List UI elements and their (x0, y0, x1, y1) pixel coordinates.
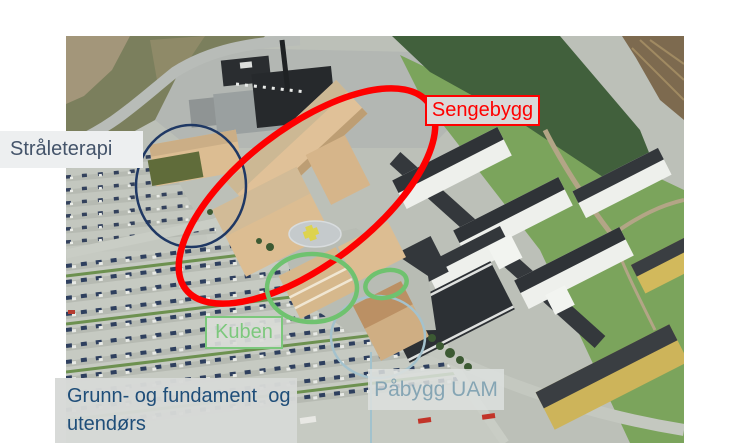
label-sengebygg-text: Sengebygg (432, 99, 533, 121)
label-grunn-line1: Grunn- og fundament og (67, 382, 297, 410)
label-grunn-og-fundament: Grunn- og fundament og utendørs (55, 378, 297, 443)
label-sengebygg: Sengebygg (425, 95, 540, 126)
label-straleterapi-text: Stråleterapi (10, 138, 112, 160)
label-grunn-line2: utendørs (67, 410, 297, 438)
slide: Stråleterapi Sengebygg Kuben Grunn- og f… (0, 0, 732, 443)
label-pabygg-uam: Påbygg UAM (368, 369, 504, 410)
helipad (289, 221, 341, 247)
label-kuben-text: Kuben (215, 321, 273, 343)
aerial-photo (0, 0, 732, 443)
label-kuben: Kuben (205, 316, 283, 349)
label-straleterapi: Stråleterapi (0, 131, 143, 168)
label-pabygg-uam-text: Påbygg UAM (374, 378, 498, 401)
